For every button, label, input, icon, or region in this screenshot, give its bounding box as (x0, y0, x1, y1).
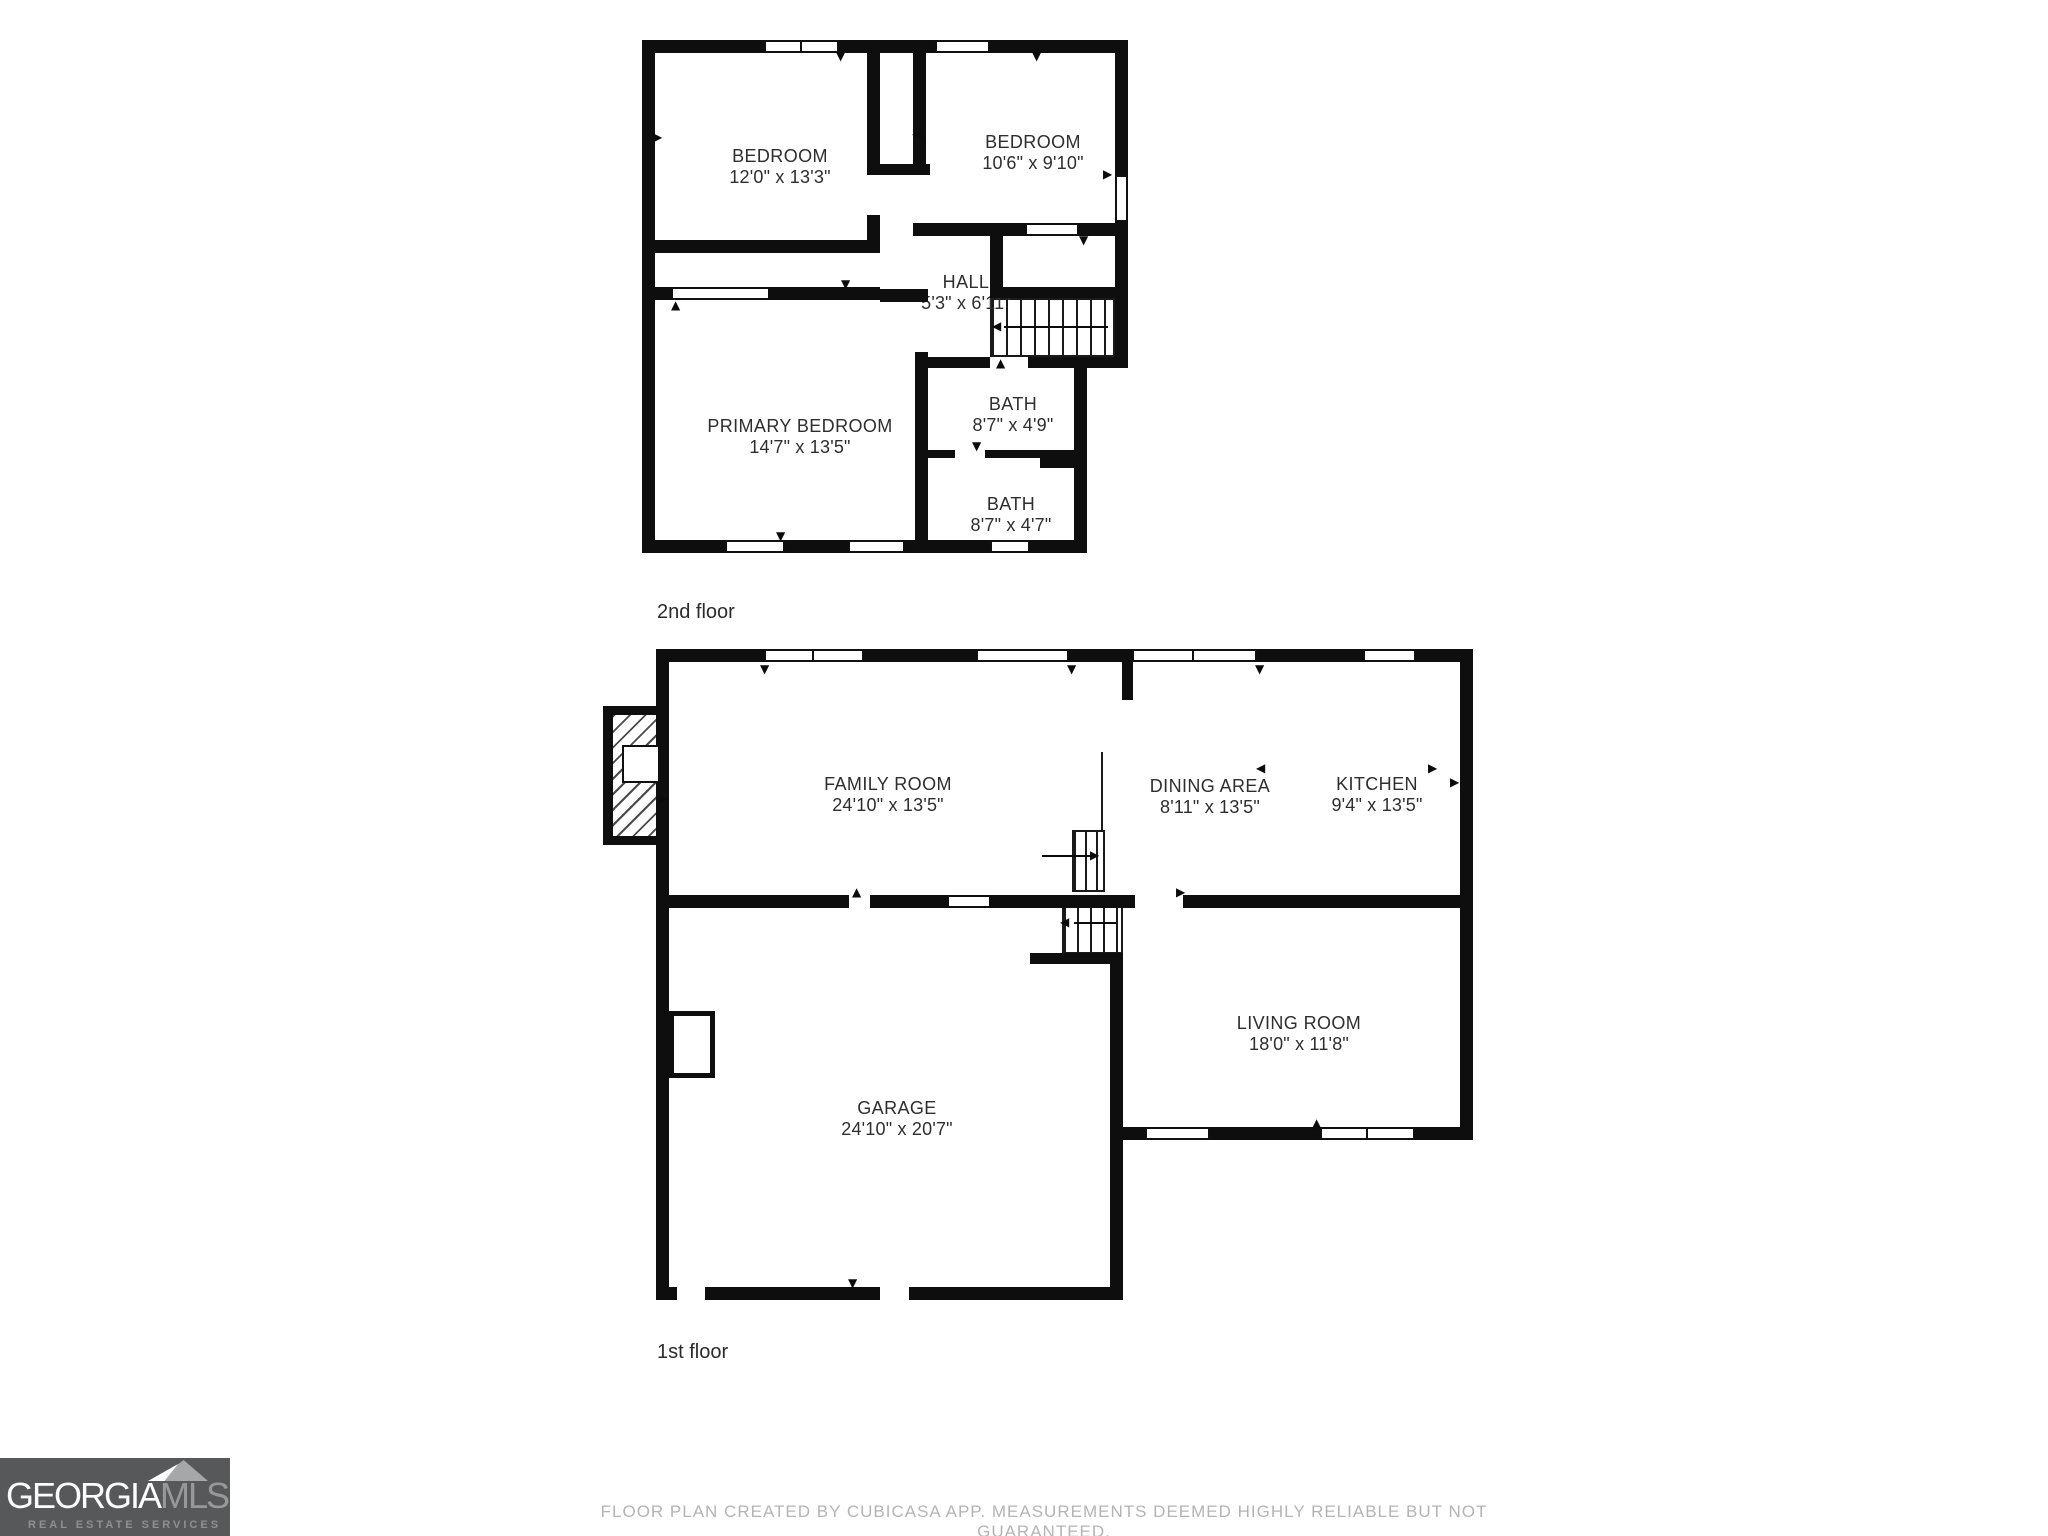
room-name: FAMILY ROOM (824, 774, 952, 795)
wall (656, 895, 849, 908)
georgia-mls-logo: GEORGIAMLS REAL ESTATE SERVICES (0, 1458, 230, 1536)
window (976, 649, 1069, 662)
door-marker-icon: ▶ (1103, 168, 1112, 180)
door-marker-icon: ▼ (760, 663, 769, 675)
stair-arrow-icon: ◀ (992, 320, 1001, 332)
room-label-living-room: LIVING ROOM 18'0" x 11'8" (1237, 1013, 1361, 1055)
floor-caption-2nd: 2nd floor (657, 601, 735, 624)
window (1363, 649, 1416, 662)
room-dims: 18'0" x 11'8" (1237, 1034, 1361, 1055)
stair-arrow-icon: ◀ (1060, 916, 1069, 928)
floor-caption-1st: 1st floor (657, 1341, 728, 1364)
wall (880, 289, 928, 302)
logo-tagline: REAL ESTATE SERVICES (28, 1519, 221, 1531)
room-name: BATH (973, 394, 1054, 415)
door-marker-icon: ▶ (659, 792, 668, 804)
room-dims: 8'7" x 4'7" (971, 515, 1052, 536)
wall (989, 895, 1135, 908)
logo-wordmark: GEORGIAMLS (6, 1478, 228, 1514)
stair-arrow-icon: ▶ (1090, 849, 1099, 861)
window (990, 540, 1030, 553)
window (764, 649, 864, 662)
door-marker-icon: ▼ (972, 440, 981, 452)
window-mullion (1366, 1127, 1368, 1140)
room-name: KITCHEN (1331, 774, 1422, 795)
room-dims: 24'10" x 20'7" (841, 1119, 953, 1140)
window-mullion (800, 40, 802, 53)
wall (990, 287, 1128, 298)
room-label-garage: GARAGE 24'10" x 20'7" (841, 1098, 953, 1140)
room-name: GARAGE (841, 1098, 953, 1119)
logo-brand-primary: GEORGIA (6, 1475, 160, 1516)
wall (656, 1287, 677, 1300)
door-marker-icon: ◀ (912, 128, 921, 140)
door-marker-icon: ▶ (653, 131, 662, 143)
wall (1122, 662, 1133, 700)
room-dims: 14'7" x 13'5" (707, 437, 892, 458)
wall (867, 215, 880, 253)
stair-direction-line (1074, 922, 1116, 924)
door-marker-icon: ▼ (836, 50, 845, 62)
window-mullion (1192, 649, 1194, 662)
room-label-bath-lower: BATH 8'7" x 4'7" (971, 494, 1052, 536)
wall (909, 1287, 1123, 1300)
door-opening (1027, 223, 1077, 236)
room-label-primary-bedroom: PRIMARY BEDROOM 14'7" x 13'5" (707, 416, 892, 458)
wall (642, 240, 880, 253)
stair-direction-line (1004, 326, 1108, 328)
door-marker-icon: ▲ (671, 299, 680, 311)
logo-brand-secondary: MLS (160, 1475, 228, 1516)
wall (1040, 450, 1077, 468)
room-name: BATH (971, 494, 1052, 515)
window (1145, 1127, 1210, 1140)
window (848, 540, 905, 553)
door-marker-icon: ▲ (1312, 1117, 1321, 1129)
door-marker-icon: ▼ (776, 530, 785, 542)
garage-closet (669, 1011, 715, 1078)
wall (1183, 895, 1473, 908)
door-marker-icon: ▲ (852, 886, 861, 898)
wall (985, 450, 1040, 458)
door-marker-icon: ▲ (996, 357, 1005, 369)
room-name: BEDROOM (982, 132, 1083, 153)
room-label-family-room: FAMILY ROOM 24'10" x 13'5" (824, 774, 952, 816)
room-label-bedroom-2: BEDROOM 10'6" x 9'10" (982, 132, 1083, 174)
room-name: BEDROOM (729, 146, 830, 167)
closet-opening (673, 287, 768, 300)
wall (1030, 953, 1122, 964)
room-label-bath-upper: BATH 8'7" x 4'9" (973, 394, 1054, 436)
staircase-up (1072, 830, 1105, 892)
room-dims: 12'0" x 13'3" (729, 167, 830, 188)
wall (867, 51, 880, 167)
room-dims: 24'10" x 13'5" (824, 795, 952, 816)
wall (928, 450, 955, 458)
wall (642, 287, 673, 300)
room-dims: 10'6" x 9'10" (982, 153, 1083, 174)
door-marker-icon: ▼ (1255, 663, 1264, 675)
room-label-bedroom-1: BEDROOM 12'0" x 13'3" (729, 146, 830, 188)
door-marker-icon: ▼ (1079, 234, 1088, 246)
door-marker-icon: ▼ (1032, 50, 1041, 62)
door-marker-icon: ▶ (1450, 776, 1459, 788)
window-mullion (812, 649, 814, 662)
room-dims: 9'4" x 13'5" (1331, 795, 1422, 816)
door-opening (949, 895, 989, 908)
room-dims: 8'7" x 4'9" (973, 415, 1054, 436)
floorplan-page: ◀ ▶ ▼ ▼ ◀ ▼ ▲ ▼ ▼ ▲ ▼ ▶ BEDROOM 12'0" x … (0, 0, 2048, 1536)
room-name: DINING AREA (1150, 776, 1270, 797)
stair-rail (1101, 752, 1103, 830)
wall (915, 352, 928, 553)
door-marker-icon: ▶ (1428, 762, 1437, 774)
fireplace-wall (603, 836, 660, 845)
fireplace-wall (603, 706, 613, 845)
door-marker-icon: ▶ (1176, 886, 1185, 898)
room-name: LIVING ROOM (1237, 1013, 1361, 1034)
window (935, 40, 990, 53)
fireplace-firebox (622, 745, 660, 783)
room-name: PRIMARY BEDROOM (707, 416, 892, 437)
door-marker-icon: ▼ (1067, 663, 1076, 675)
wall (642, 40, 1128, 53)
fireplace-wall (603, 706, 660, 715)
room-dims: 8'11" x 13'5" (1150, 797, 1270, 818)
door-marker-icon: ▼ (848, 1277, 857, 1289)
room-label-dining-area: DINING AREA 8'11" x 13'5" (1150, 776, 1270, 818)
window (1132, 649, 1257, 662)
wall (1028, 357, 1128, 368)
disclaimer-text: FLOOR PLAN CREATED BY CUBICASA APP. MEAS… (576, 1502, 1512, 1536)
window (1115, 175, 1128, 222)
wall (913, 223, 1027, 236)
door-marker-icon: ◀ (1256, 762, 1265, 774)
door-marker-icon: ▼ (841, 278, 850, 290)
wall (768, 287, 880, 300)
wall (913, 51, 926, 175)
room-label-kitchen: KITCHEN 9'4" x 13'5" (1331, 774, 1422, 816)
wall (870, 895, 949, 908)
